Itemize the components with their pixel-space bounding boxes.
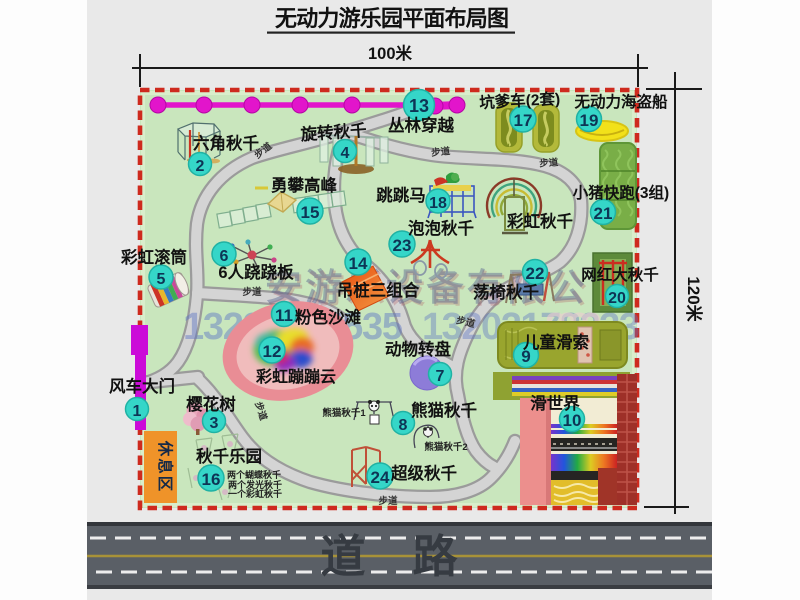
svg-text:荡椅秋千: 荡椅秋千 <box>473 282 539 302</box>
svg-text:21: 21 <box>594 204 613 223</box>
svg-text:无动力游乐园平面布局图: 无动力游乐园平面布局图 <box>275 6 509 31</box>
svg-text:120米: 120米 <box>684 276 704 322</box>
svg-text:休息区: 休息区 <box>156 440 175 494</box>
svg-text:秋千乐园: 秋千乐园 <box>196 446 262 466</box>
svg-text:熊猫秋千: 熊猫秋千 <box>411 400 477 420</box>
svg-text:动物转盘: 动物转盘 <box>385 339 452 359</box>
svg-text:安游乐设备有限公司: 安游乐设备有限公司 <box>265 267 625 308</box>
svg-text:2: 2 <box>196 158 205 175</box>
svg-text:7: 7 <box>436 368 445 385</box>
svg-text:19: 19 <box>580 111 599 130</box>
svg-text:17: 17 <box>514 111 533 130</box>
svg-text:路: 路 <box>412 531 458 582</box>
svg-text:步道: 步道 <box>431 145 452 159</box>
svg-text:步道: 步道 <box>378 495 398 507</box>
svg-text:6: 6 <box>220 248 229 265</box>
svg-text:14: 14 <box>349 254 368 273</box>
svg-text:步道: 步道 <box>539 156 559 169</box>
svg-text:滑世界: 滑世界 <box>530 394 580 413</box>
svg-text:15: 15 <box>301 203 320 222</box>
svg-text:丛林穿越: 丛林穿越 <box>388 115 455 135</box>
svg-text:100米: 100米 <box>368 43 413 63</box>
svg-text:六角秋千: 六角秋千 <box>193 133 259 153</box>
svg-text:3: 3 <box>210 415 219 432</box>
svg-text:一个彩虹秋千: 一个彩虹秋千 <box>228 488 282 499</box>
svg-text:道: 道 <box>320 531 365 582</box>
svg-text:彩虹滚筒: 彩虹滚筒 <box>120 247 187 267</box>
svg-text:儿童滑索: 儿童滑索 <box>522 332 589 352</box>
svg-text:网红大秋千: 网红大秋千 <box>581 265 659 284</box>
svg-text:18: 18 <box>429 195 447 212</box>
svg-text:跳跳马: 跳跳马 <box>376 185 426 205</box>
svg-text:粉色沙滩: 粉色沙滩 <box>295 307 362 327</box>
svg-text:12: 12 <box>263 342 282 361</box>
svg-text:无动力海盗船: 无动力海盗船 <box>573 92 668 111</box>
svg-text:13: 13 <box>409 96 429 116</box>
svg-text:樱花树: 樱花树 <box>186 394 236 414</box>
svg-text:11: 11 <box>275 306 293 325</box>
svg-text:1: 1 <box>133 403 142 420</box>
svg-text:步道: 步道 <box>242 286 262 298</box>
svg-text:6人跷跷板: 6人跷跷板 <box>218 262 294 282</box>
svg-text:熊猫秋千1: 熊猫秋千1 <box>322 407 366 419</box>
svg-text:20: 20 <box>608 290 626 307</box>
svg-text:10: 10 <box>563 411 582 430</box>
svg-text:16: 16 <box>202 470 221 489</box>
svg-text:24: 24 <box>371 468 390 487</box>
svg-text:吊桩三组合: 吊桩三组合 <box>337 280 420 300</box>
svg-text:两个蝴蝶秋千: 两个蝴蝶秋千 <box>227 469 281 480</box>
svg-text:22: 22 <box>526 264 545 283</box>
svg-text:23: 23 <box>393 236 412 255</box>
svg-text:4: 4 <box>341 145 350 162</box>
svg-text:熊猫秋千2: 熊猫秋千2 <box>424 441 467 453</box>
svg-text:风车大门: 风车大门 <box>109 376 175 396</box>
svg-text:8: 8 <box>399 417 408 434</box>
svg-text:勇攀高峰: 勇攀高峰 <box>271 175 338 195</box>
svg-text:5: 5 <box>157 271 166 288</box>
svg-text:超级秋千: 超级秋千 <box>391 463 457 483</box>
svg-text:彩虹蹦蹦云: 彩虹蹦蹦云 <box>255 367 336 386</box>
svg-text:彩虹秋千: 彩虹秋千 <box>506 211 573 231</box>
svg-text:泡泡秋千: 泡泡秋千 <box>408 218 474 238</box>
svg-text:小猪快跑(3组): 小猪快跑(3组) <box>573 183 669 202</box>
